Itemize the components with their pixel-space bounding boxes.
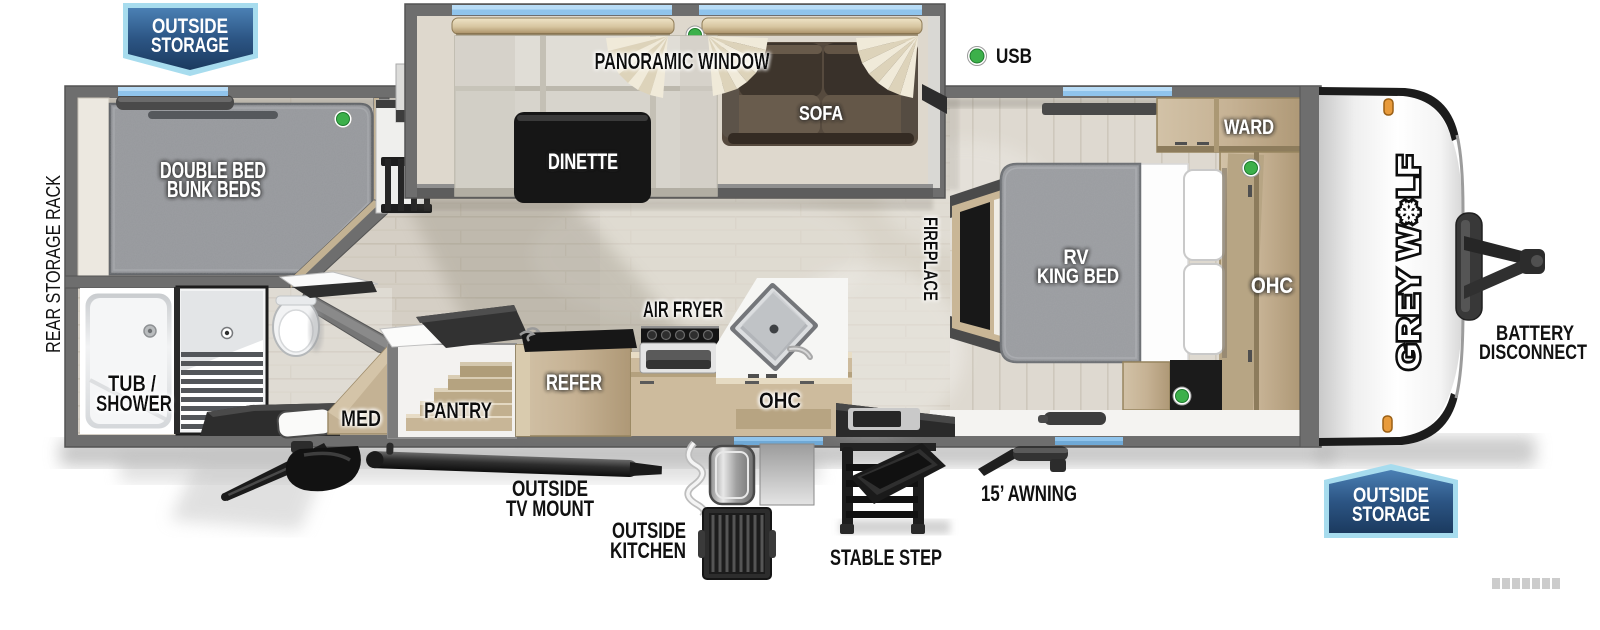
svg-text:KITCHEN: KITCHEN [610, 538, 686, 563]
svg-text:STABLE STEP: STABLE STEP [830, 545, 942, 570]
svg-text:BUNK BEDS: BUNK BEDS [167, 176, 261, 202]
svg-text:DINETTE: DINETTE [548, 149, 618, 174]
svg-text:SHOWER: SHOWER [96, 391, 172, 416]
svg-text:AIR FRYER: AIR FRYER [643, 297, 723, 322]
svg-text:USB: USB [996, 45, 1032, 68]
svg-text:TV MOUNT: TV MOUNT [506, 496, 594, 521]
svg-text:15’ AWNING: 15’ AWNING [981, 481, 1077, 506]
svg-text:STORAGE: STORAGE [1352, 503, 1430, 526]
svg-text:MED: MED [341, 406, 381, 431]
svg-text:WARD: WARD [1224, 116, 1274, 139]
svg-text:STORAGE: STORAGE [151, 34, 229, 57]
svg-text:FIREPLACE: FIREPLACE [919, 217, 940, 301]
svg-text:PANORAMIC WINDOW: PANORAMIC WINDOW [595, 48, 770, 74]
svg-text:PANTRY: PANTRY [424, 398, 492, 423]
svg-text:OHC: OHC [1251, 273, 1293, 298]
svg-text:OHC: OHC [759, 388, 801, 413]
svg-text:GREY W❄LF: GREY W❄LF [1391, 154, 1426, 370]
svg-text:REAR STORAGE RACK: REAR STORAGE RACK [43, 174, 65, 353]
svg-text:SOFA: SOFA [799, 103, 843, 125]
svg-text:REFER: REFER [546, 370, 602, 395]
svg-text:DISCONNECT: DISCONNECT [1479, 341, 1587, 364]
svg-text:KING BED: KING BED [1037, 265, 1119, 288]
